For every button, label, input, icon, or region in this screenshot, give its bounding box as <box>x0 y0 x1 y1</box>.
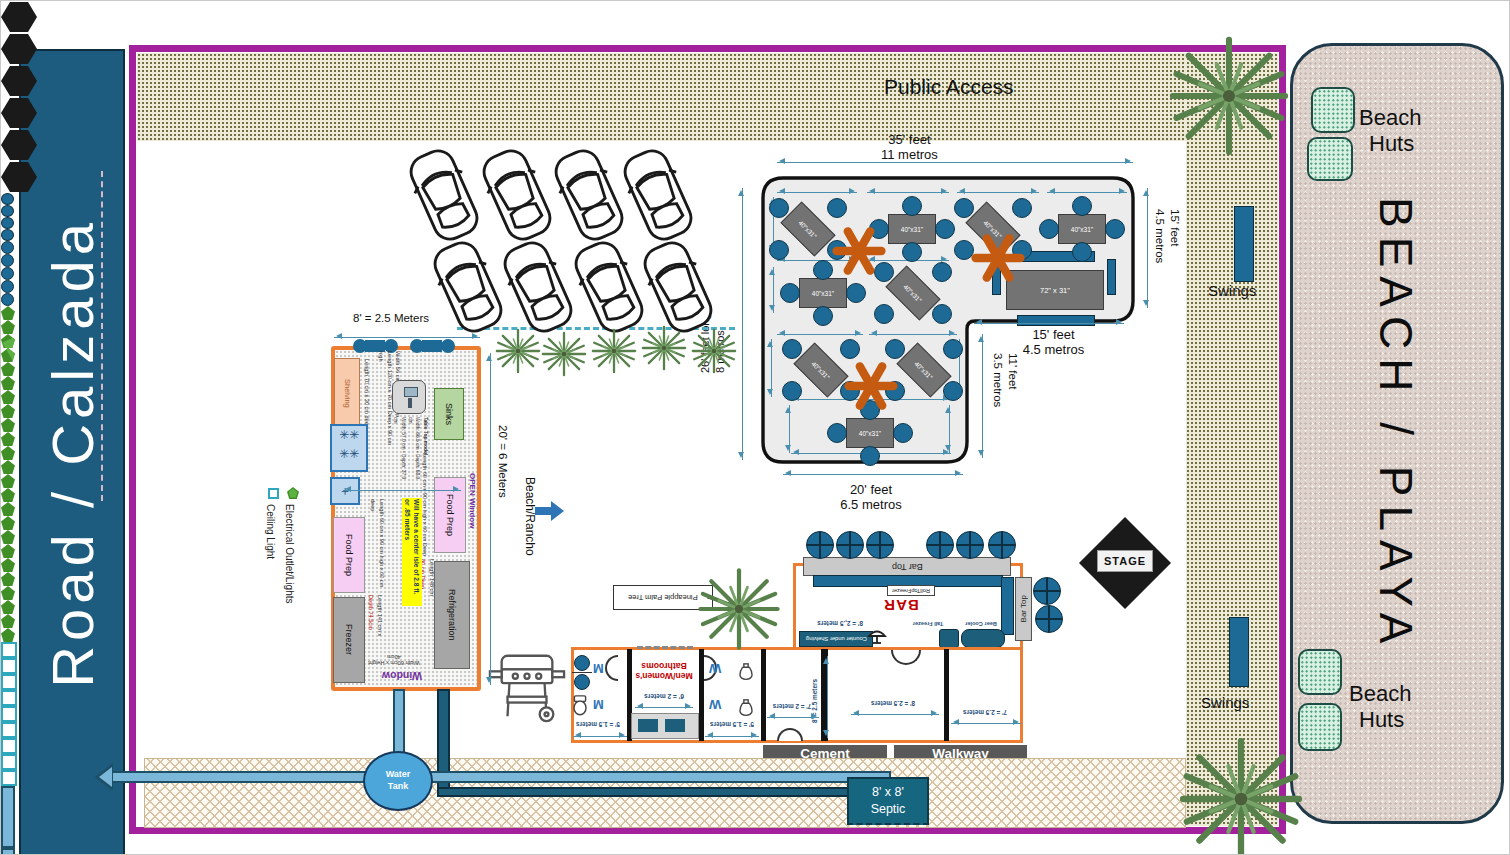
bathroom-dim-m: 5' = 1.5 meters <box>569 721 627 728</box>
stool-small <box>1 254 14 267</box>
septic-tank: 8' x 8' Septic <box>847 777 929 825</box>
electrical-outlet-icon <box>1 390 15 404</box>
palm-tree-icon <box>591 328 637 374</box>
drain-pipe <box>1 848 15 855</box>
stool-small <box>1 293 14 306</box>
bbq-grill-icon <box>488 645 566 725</box>
bathroom-wall <box>944 649 949 741</box>
womens-label: W <box>709 661 721 676</box>
ceiling-light-icon <box>1 642 17 658</box>
dimension-arrow <box>771 339 772 397</box>
palm-tree-icon <box>691 328 737 374</box>
water-tank: Water Tank <box>363 751 433 811</box>
electrical-outlet-icon <box>1 474 15 488</box>
road-underline-squiggle <box>101 171 103 501</box>
dimension-arrow <box>705 736 759 737</box>
sinks-box: Sinks <box>434 388 464 440</box>
palm-tree-icon <box>495 328 541 374</box>
dimension-arrow <box>635 707 693 708</box>
chair <box>1012 198 1032 218</box>
dim-bottom: 20' feet 6.5 metros <box>801 482 941 512</box>
bench <box>1017 315 1095 326</box>
chair <box>769 198 789 218</box>
lamp-icon <box>867 627 887 647</box>
palm-tree-icon <box>641 325 687 371</box>
bathroom-dim-center: 6' = 2 meters <box>637 693 691 700</box>
tall-freezer-box <box>939 629 959 648</box>
site-plan-canvas: Road / Calzada Public Access BEACH / PLA… <box>0 0 1510 855</box>
beer-cooler-box <box>961 629 1005 648</box>
dimension-arrow <box>767 717 819 718</box>
bathrooms-title: Men/Women's Bathrooms <box>631 659 697 683</box>
chair <box>932 262 952 282</box>
bar-dim: 8' = 2,.5 meters <box>809 620 871 627</box>
chair <box>827 423 847 443</box>
stove-icon: ✳✳✳✳ <box>330 424 368 472</box>
ceiling-light-icon <box>1 770 17 786</box>
chair <box>902 242 922 262</box>
womens-label: W <box>709 697 721 712</box>
chair <box>780 283 800 303</box>
dimension-arrow <box>343 490 461 491</box>
chair <box>846 283 866 303</box>
legend-ceiling-label: Ceiling Light <box>265 504 276 634</box>
kitchen-dim-width-label: 8' = 2.5 Meters <box>353 312 429 324</box>
bar-stool <box>956 531 984 559</box>
road-strip: Road / Calzada <box>19 49 125 855</box>
tabletop-model-note: Table Top model Width: 66.5 cm • Depth: … <box>392 417 429 481</box>
bathroom-dim-w: 5' = 1.5 meters <box>703 721 761 728</box>
beach-huts-label-top: Beach Huts <box>1359 105 1421 157</box>
electrical-outlet-icon <box>1 418 15 432</box>
electrical-outlet-icon <box>1 446 15 460</box>
chair <box>943 339 963 359</box>
dimension-arrow <box>789 405 790 453</box>
electrical-outlet-icon <box>1 502 15 516</box>
dim-top: 35' feet 11 metros <box>881 132 938 162</box>
dimension-arrow <box>773 267 774 313</box>
road-label: Road / Calzada <box>39 218 106 688</box>
dimension-arrow <box>867 192 949 193</box>
bar-stool <box>926 531 954 559</box>
stool-small <box>1 280 14 293</box>
dimension-arrow <box>851 714 939 715</box>
dimension-arrow <box>573 736 627 737</box>
open-window-label: OPEN Window <box>468 473 477 561</box>
window-mark <box>422 340 442 352</box>
electrical-outlet-icon <box>1 348 15 362</box>
storage3-dim: 7' = 2.5 meters <box>949 709 1021 716</box>
chair <box>840 339 860 359</box>
bar-stool <box>866 531 894 559</box>
dimension-arrow <box>1147 188 1148 308</box>
bar-stool <box>1033 577 1061 605</box>
stage-label-box: STAGE <box>1097 550 1153 572</box>
electrical-outlet-icon <box>1 530 15 544</box>
kitchen-dim-height-label: 20' = 6 Meters <box>497 425 509 525</box>
orange-star-marker <box>843 358 899 414</box>
urinal-icon <box>574 655 590 671</box>
septic-main-pipe <box>437 787 861 797</box>
chair <box>874 304 894 324</box>
ceiling-light-icon <box>1 754 17 770</box>
beach-title: BEACH / PLAYA <box>1369 197 1423 717</box>
hexagon-seat <box>1 1 37 33</box>
chair <box>769 240 789 260</box>
chair <box>943 381 963 401</box>
electrical-outlet-icon <box>1 488 15 502</box>
dimension-arrow <box>777 192 857 193</box>
dimension-arrow <box>490 353 491 685</box>
bar-stool <box>806 531 834 559</box>
ceiling-light-icon <box>1 658 17 674</box>
center-isle-note: Will have a center isle of 2.8 ft. or .8… <box>402 498 422 606</box>
water-jug-icon <box>739 663 753 682</box>
sink-unit-icon <box>392 380 426 414</box>
mens-label: M <box>593 661 604 676</box>
orange-star-marker <box>970 230 1026 286</box>
electrical-outlet-icon <box>1 614 15 628</box>
dimension-arrow <box>951 723 1021 724</box>
rolltop-freezer: RollTopFreezer <box>887 585 935 596</box>
drain-pipe <box>1 786 15 848</box>
legend-ceiling-icon <box>268 488 279 499</box>
chair <box>782 339 802 359</box>
ceiling-light-icon <box>1 674 17 690</box>
window-dim: Width 60cm x Height 40cm <box>361 654 427 666</box>
bar-stool <box>1035 605 1063 633</box>
chair <box>782 381 802 401</box>
toilet-icon <box>572 695 588 716</box>
legend-electrical-label: Electrical Outlet/Lights <box>284 504 295 634</box>
tall-freezer-label: Tall Freezer <box>911 621 945 627</box>
chair <box>902 196 922 216</box>
dim-lowright: 11' feet 3.5 metros <box>989 353 1020 468</box>
public-access-label: Public Access <box>884 75 1014 99</box>
chair <box>893 423 913 443</box>
swings-label-top: Swings <box>1208 282 1256 299</box>
public-access-top-strip <box>137 53 1278 141</box>
chair <box>932 304 952 324</box>
electrical-outlet-icon <box>1 334 15 348</box>
electrical-outlet-icon <box>1 362 15 376</box>
bar-name: BAR <box>875 596 927 616</box>
electrical-outlet-icon <box>1 404 15 418</box>
electrical-outlet-icon <box>1 558 15 572</box>
stool-small <box>1 241 14 254</box>
chair <box>954 198 974 218</box>
chair <box>813 306 833 326</box>
water-supply-pipe <box>101 771 891 783</box>
counter-under-shelving: Counter under Shelving <box>799 631 873 647</box>
chair <box>1105 219 1125 239</box>
chair <box>1039 219 1059 239</box>
beach-rancho-arrowhead <box>551 501 574 521</box>
chair <box>813 260 833 280</box>
water-jug-icon <box>739 699 753 718</box>
electrical-outlet-icon <box>1 628 15 642</box>
palm-tree-icon <box>1168 35 1290 157</box>
bench <box>1107 259 1116 295</box>
palm-tree-icon <box>541 331 587 377</box>
bar-stool <box>836 531 864 559</box>
sink-basin <box>665 719 685 732</box>
beach-rancho-arrow <box>535 507 551 515</box>
palm-tree-icon <box>1178 736 1304 855</box>
palm-tree-icon <box>697 567 781 651</box>
beach-hut <box>1307 137 1353 181</box>
electrical-outlet-icon <box>1 544 15 558</box>
bar-top-right: Bar Top <box>1015 577 1032 641</box>
dimension-arrow <box>783 474 963 475</box>
electrical-outlet-icon <box>1 586 15 600</box>
dimension-arrow <box>777 162 1133 163</box>
dimension-arrow <box>777 334 863 335</box>
electrical-outlet-icon <box>1 516 15 530</box>
food-prep-left-dim: Length 60 cm x 90 cm high x 60 cm deep <box>369 499 386 599</box>
window-mark <box>441 339 455 353</box>
chair <box>1072 242 1092 262</box>
urinal-icon <box>574 674 590 690</box>
chair <box>827 198 847 218</box>
bar-stool-small <box>1 205 14 217</box>
dimension-arrow <box>742 188 743 460</box>
pipe-arrowhead-inner <box>89 767 112 787</box>
ceiling-light-icon <box>1 722 17 738</box>
dim-right: 15' feet 4.5 metros <box>1151 209 1182 319</box>
dimension-arrow <box>1047 192 1127 193</box>
bar-stool-small <box>1 217 14 229</box>
food-prep-left: Food Prep <box>333 517 365 593</box>
ceiling-light-icon <box>1 690 17 706</box>
stool-small <box>1 267 14 280</box>
divider-line <box>572 672 592 673</box>
electrical-outlet-icon <box>1 376 15 390</box>
mens-label: M <box>593 697 604 712</box>
ceiling-light-icon <box>1 706 17 722</box>
bar-stool <box>988 531 1016 559</box>
swing-top <box>1234 206 1254 282</box>
electrical-outlet-icon <box>1 460 15 474</box>
bar-stool-small <box>1 193 14 205</box>
electrical-outlet-icon <box>1 600 15 614</box>
electrical-outlet-icon <box>1 320 15 334</box>
refrigeration-box: Refrigeration <box>434 561 470 669</box>
dimension-arrow <box>974 323 1124 324</box>
dimension-arrow <box>827 656 828 738</box>
tank-inlet-pipe <box>393 689 405 757</box>
dining-table: 40"x31" <box>846 418 894 448</box>
electrical-outlet-icon <box>1 572 15 586</box>
dimension-arrow <box>869 334 957 335</box>
dimension-arrow <box>949 405 950 453</box>
sink-basin <box>638 719 658 732</box>
beach-hut <box>1298 703 1342 751</box>
beach-hut <box>1298 649 1342 695</box>
beer-cooler-label: Beer Cooler <box>959 621 1003 627</box>
electrical-outlet-icon <box>1 432 15 446</box>
window-label: Window <box>373 670 431 682</box>
bathroom-opening-dashed <box>637 646 693 649</box>
shelving-unit: Shelving <box>334 358 360 428</box>
swing-bottom <box>1229 617 1249 687</box>
chair <box>935 219 955 239</box>
bathroom-wall <box>761 649 766 741</box>
swings-label-bottom: Swings <box>1201 694 1249 711</box>
bar-top-counter: Bar Top <box>803 557 1011 576</box>
freezer-box: Freezer <box>333 597 365 683</box>
chair <box>860 446 880 466</box>
beach-rancho-label: Beach/Rancho <box>523 477 537 577</box>
chair <box>1072 196 1092 216</box>
dining-table: 40"x31" <box>1058 214 1106 244</box>
ceiling-light-icon <box>1 738 17 754</box>
beach-huts-label-bottom: Beach Huts <box>1349 681 1411 733</box>
orange-star-marker <box>831 223 887 279</box>
bar-stool-small <box>1 229 14 241</box>
beach-hut <box>1311 87 1355 133</box>
chair <box>885 339 905 359</box>
dimension-arrow <box>982 334 983 458</box>
dining-table: 40"x31" <box>888 214 936 244</box>
dimension-arrow <box>957 192 1039 193</box>
electrical-outlet-icon <box>1 306 15 320</box>
dining-table: 40"x31" <box>799 278 847 308</box>
storage2-dim: 8' = 2.5 meters <box>849 700 937 707</box>
dim-mid: 15' feet 4.5 metros <box>1006 327 1101 357</box>
